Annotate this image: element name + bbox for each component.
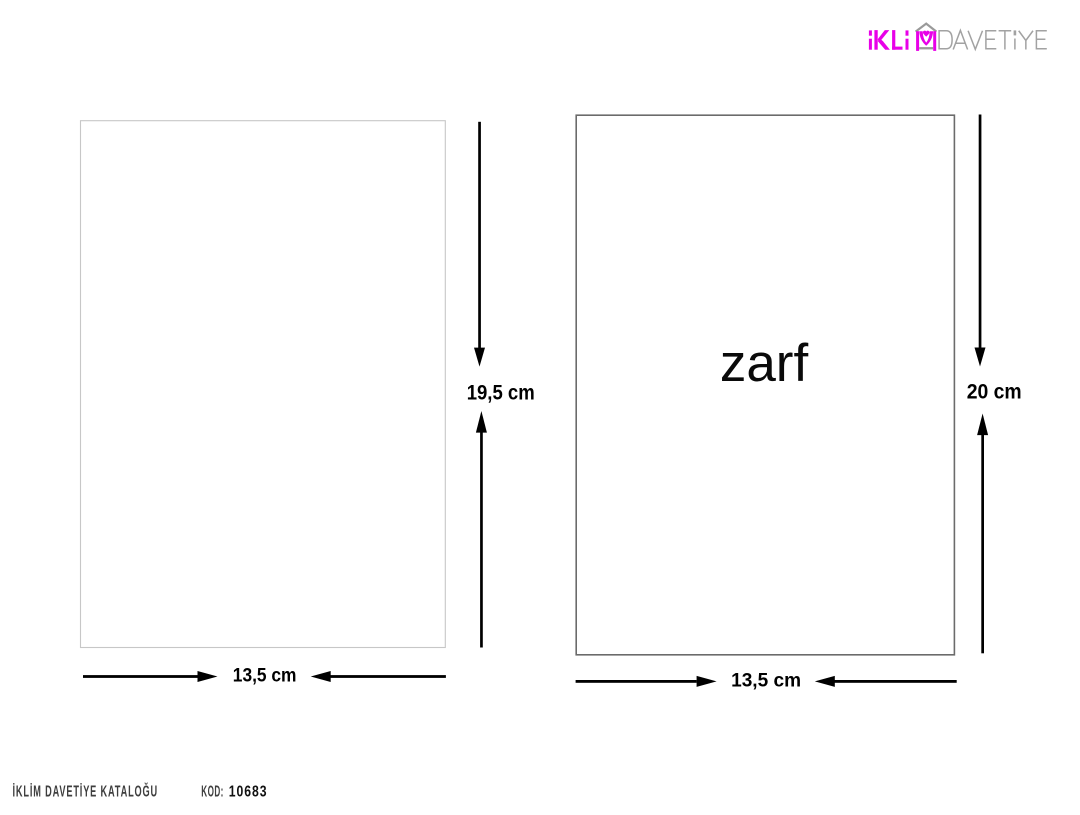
svg-text:İKLİM DAVETİYE KATALOĞU: İKLİM DAVETİYE KATALOĞU	[13, 783, 159, 801]
svg-text:KOD:: KOD:	[201, 784, 224, 801]
svg-text:13,5 cm: 13,5 cm	[233, 666, 297, 687]
svg-text:10683: 10683	[229, 784, 268, 801]
svg-text:19,5 cm: 19,5 cm	[467, 380, 535, 404]
svg-text:13,5 cm: 13,5 cm	[731, 670, 801, 691]
svg-text:zarf: zarf	[720, 334, 809, 393]
svg-text:20 cm: 20 cm	[967, 380, 1022, 404]
